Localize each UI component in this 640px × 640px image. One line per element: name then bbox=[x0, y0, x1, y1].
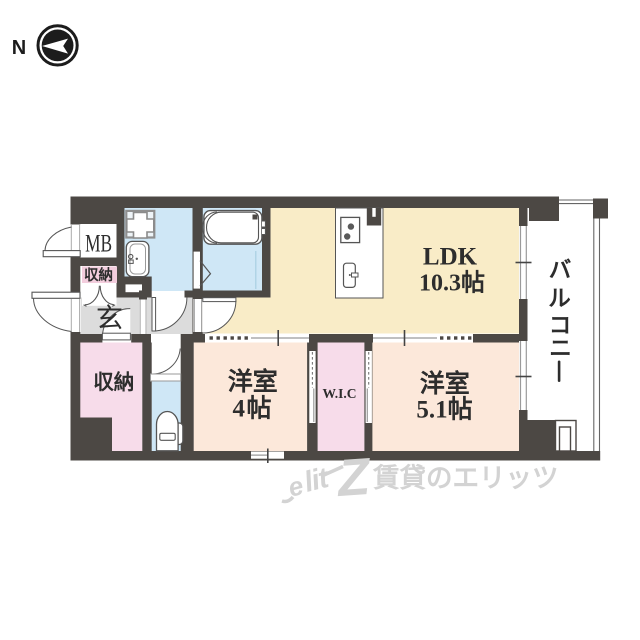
svg-text:収納: 収納 bbox=[84, 266, 113, 284]
svg-text:MB: MB bbox=[85, 230, 112, 257]
svg-text:収納: 収納 bbox=[93, 370, 134, 394]
svg-text:5.1帖: 5.1帖 bbox=[416, 396, 472, 424]
svg-text:LDK: LDK bbox=[423, 244, 478, 271]
svg-text:コ: コ bbox=[549, 313, 572, 338]
svg-text:賃貸のエリッツ: 賃貸のエリッツ bbox=[372, 463, 559, 493]
svg-text:玄: 玄 bbox=[96, 304, 123, 334]
svg-text:ニ: ニ bbox=[549, 336, 572, 361]
svg-text:バ: バ bbox=[549, 258, 572, 283]
svg-text:洋室: 洋室 bbox=[228, 367, 278, 396]
svg-text:10.3帖: 10.3帖 bbox=[419, 270, 485, 297]
svg-text:Z: Z bbox=[334, 448, 374, 508]
svg-text:4帖: 4帖 bbox=[233, 395, 274, 423]
svg-text:洋室: 洋室 bbox=[420, 369, 470, 398]
svg-text:ル: ル bbox=[548, 286, 571, 311]
svg-text:N: N bbox=[12, 37, 26, 59]
svg-text:W.I.C: W.I.C bbox=[322, 386, 356, 401]
